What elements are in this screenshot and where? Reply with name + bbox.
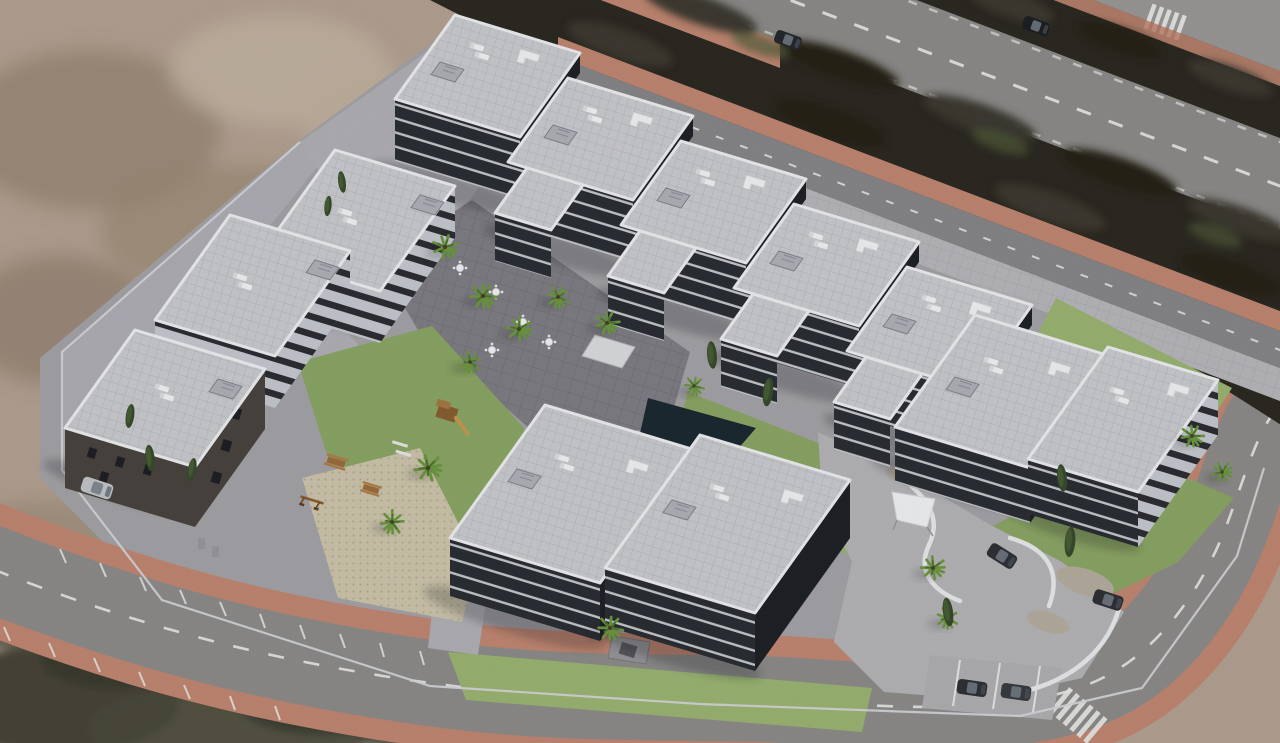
photo-grain-overlay [0,0,1280,743]
aerial-render [0,0,1280,743]
aerial-render-viewport [0,0,1280,743]
